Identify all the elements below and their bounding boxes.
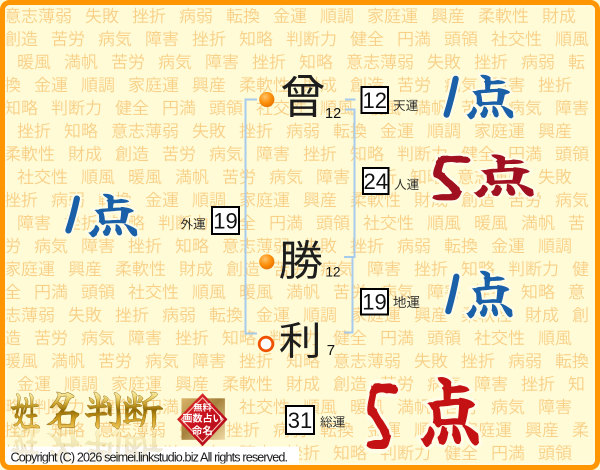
svg-text:Copyright (C) 2026 seimei.link: Copyright (C) 2026 seimei.linkstudio.biz… — [11, 450, 289, 464]
svg-text:19: 19 — [213, 208, 237, 233]
svg-text:24: 24 — [364, 169, 388, 194]
svg-text:31: 31 — [288, 408, 312, 433]
svg-text:12: 12 — [326, 265, 341, 280]
svg-text:12: 12 — [363, 88, 387, 113]
svg-text:12: 12 — [325, 106, 341, 122]
svg-text:7: 7 — [327, 342, 335, 359]
svg-text:19: 19 — [362, 290, 386, 315]
